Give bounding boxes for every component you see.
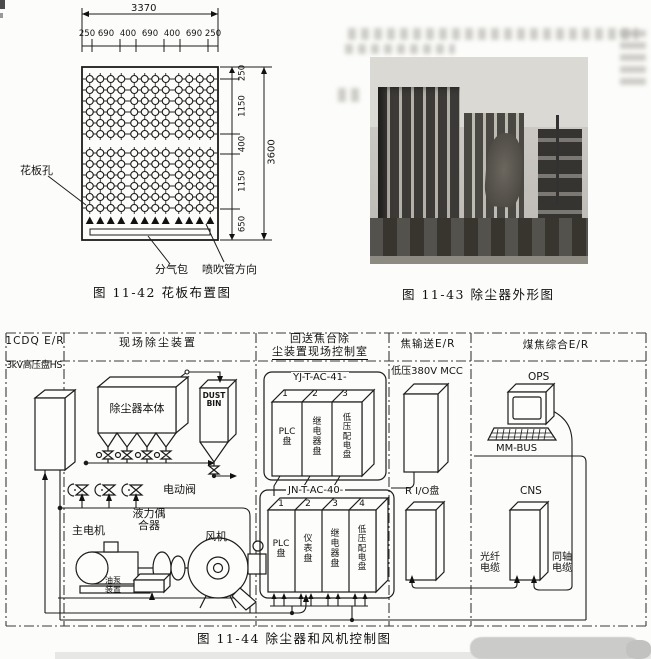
equipment-photo [370, 57, 588, 264]
fluid-coupling-label: 液力偶 合器 [133, 508, 166, 532]
scan-speck [0, 13, 3, 18]
figure43-caption: 图 11-43 除尘器外形图 [402, 288, 554, 302]
section-header-ctrl-room-line2: 尘装置现场控制室 [272, 346, 368, 360]
dim-seg-label: 1150 [238, 170, 247, 192]
mcc-label: 低压380V MCC [391, 366, 463, 377]
cabinet2-panel-label: 仪 表 盘 [303, 535, 312, 565]
oil-pump-label: 油泵 装置 [105, 577, 121, 595]
cabinet2-title: JN-T-AC-40- [286, 485, 345, 496]
photo-ground-strip [370, 256, 588, 264]
main-motor-label: 主电机 [72, 525, 105, 537]
section-header-coke-er: 焦输送E/R [401, 339, 456, 351]
cabinet2-panel-num: 3 [332, 500, 338, 510]
cabinet1-panel-label: 低 压 配 电 盘 [343, 414, 352, 461]
ink-bleedthrough [348, 28, 638, 40]
cabinet2-panel-label: PLC 盘 [273, 540, 290, 560]
remote-io-label: R I/O盘 [405, 486, 439, 497]
mm-bus-label: MM-BUS [496, 443, 537, 454]
section-header-site: 现场除尘装置 [119, 337, 197, 349]
ink-bleedthrough [345, 44, 455, 54]
cabinet1-panel-num: 3 [342, 390, 348, 400]
scan-blob [470, 637, 640, 659]
motor-valve-label: 电动阀 [163, 484, 196, 496]
dim-seg-label: 690 [186, 30, 202, 39]
cabinet1-panel-label: PLC 盘 [279, 428, 296, 448]
air-header-label: 分气包 [155, 264, 188, 276]
photo-pole [556, 115, 559, 205]
hole-grid [83, 73, 218, 224]
dim-seg-label: 250 [79, 30, 95, 39]
dim-seg-label: 400 [120, 30, 136, 39]
dim-seg-label: 690 [98, 30, 114, 39]
collector-body-label: 除尘器本体 [110, 403, 165, 415]
coax-cable-label: 同轴 电缆 [552, 552, 572, 574]
ink-bleedthrough [338, 88, 364, 102]
scanned-book-page: 3370 250 690 400 690 400 690 250 250 115… [0, 0, 651, 659]
hole-plate-hole-label: 花板孔 [20, 165, 53, 177]
dim-seg-label: 250 [205, 30, 221, 39]
cabinet2-panel-num: 2 [305, 500, 311, 510]
fan-label: 风机 [205, 531, 227, 543]
dust-bin-label: DUST BIN [203, 392, 226, 409]
dim-seg-label: 400 [164, 30, 180, 39]
ink-bleedthrough [620, 30, 646, 85]
cabinet2-panel-num: 1 [278, 500, 284, 510]
blow-pipe-direction-label: 喷吹管方向 [202, 264, 257, 276]
dim-seg-label: 690 [142, 30, 158, 39]
cabinet1-panel-num: 2 [312, 390, 318, 400]
section-header-ctrl-room-line1: 回送焦台除 [290, 333, 350, 345]
cabinet1-panel-label: 继 电 器 盘 [312, 418, 321, 458]
cabinet1-title: YJ-T-AC-41- [291, 372, 349, 383]
hv-panel-label: 3kV高压盘HS [6, 361, 62, 371]
ops-label: OPS [528, 372, 549, 384]
section-header-cdq: 1CDQ E/R [5, 336, 64, 348]
dim-seg-label: 400 [238, 136, 247, 152]
cabinet2-panel-num: 4 [359, 500, 365, 510]
cabinet2-panel-label: 继 电 器 盘 [330, 530, 339, 570]
dim-total-height-label: 3600 [267, 139, 278, 164]
scan-speck [0, 0, 5, 9]
cns-label: CNS [520, 486, 542, 498]
dim-seg-label: 1150 [238, 95, 247, 117]
figure44-caption: 图 11-44 除尘器和风机控制图 [197, 632, 391, 646]
dim-seg-label: 650 [238, 216, 247, 232]
section-header-coal-er: 煤焦综合E/R [523, 340, 589, 352]
cabinet2-panel-label: 低 压 配 电 盘 [358, 526, 367, 573]
dim-total-width-label: 3370 [131, 3, 156, 14]
dim-seg-label: 250 [238, 65, 247, 81]
cabinet1-panel-num: 1 [282, 390, 288, 400]
fiber-cable-label: 光纤 电缆 [480, 552, 500, 574]
figure42-caption: 图 11-42 花板布置图 [93, 286, 231, 300]
scan-blob [626, 640, 651, 659]
